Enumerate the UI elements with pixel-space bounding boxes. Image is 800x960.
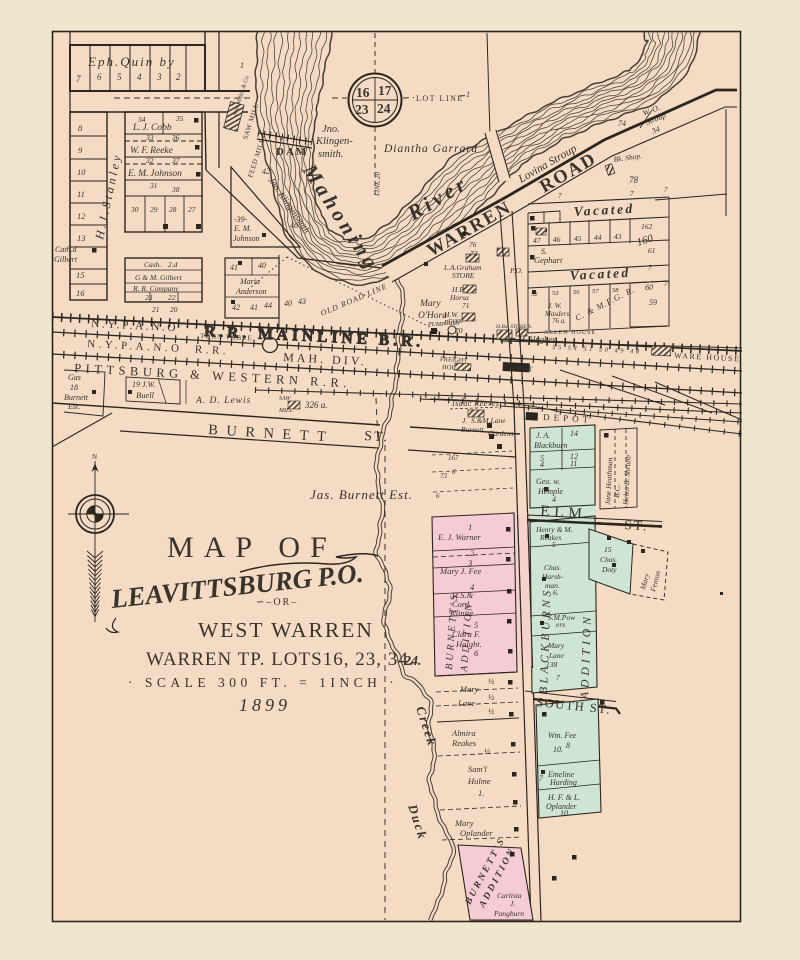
svg-text:22: 22 <box>168 293 176 302</box>
svg-text:76: 76 <box>469 240 477 249</box>
svg-text:42: 42 <box>262 167 270 176</box>
svg-text:Harding: Harding <box>549 778 577 787</box>
svg-text:11: 11 <box>77 189 85 199</box>
svg-text:Oplander: Oplander <box>460 828 493 838</box>
svg-text:30: 30 <box>130 205 139 214</box>
svg-text:29: 29 <box>150 205 158 214</box>
svg-text:Cash.: Cash. <box>144 260 161 269</box>
svg-text:TANK: TANK <box>448 319 464 325</box>
svg-text:13: 13 <box>77 233 86 243</box>
svg-text:24: 24 <box>377 101 391 116</box>
svg-text:Isaac Reeves: Isaac Reeves <box>451 399 500 408</box>
svg-text:H.Ba. STORE S.: H.Ba. STORE S. <box>495 324 532 330</box>
svg-text:∽–OR–: ∽–OR– <box>256 597 298 608</box>
svg-text:6: 6 <box>436 492 440 500</box>
svg-text:DEPOT: DEPOT <box>506 364 534 373</box>
svg-text:10.: 10. <box>553 745 563 754</box>
svg-text:59: 59 <box>649 298 657 307</box>
svg-text:72: 72 <box>470 249 478 258</box>
svg-text:4: 4 <box>137 72 142 82</box>
svg-text:32: 32 <box>145 156 154 165</box>
svg-text:DAM: DAM <box>276 146 308 158</box>
svg-text:½: ½ <box>488 692 495 702</box>
svg-text:326 a.: 326 a. <box>304 400 328 410</box>
svg-text:LOT LINE: LOT LINE <box>416 94 464 103</box>
svg-text:53: 53 <box>552 290 559 297</box>
svg-text:34: 34 <box>137 115 146 124</box>
svg-text:41: 41 <box>250 303 258 312</box>
svg-text:Hulme: Hulme <box>467 776 491 786</box>
svg-text:37: 37 <box>171 156 180 165</box>
svg-text:60: 60 <box>645 283 653 292</box>
svg-text:73: 73 <box>440 472 448 480</box>
svg-text:B.C.: B.C. <box>612 484 622 498</box>
svg-text:36: 36 <box>171 133 180 142</box>
svg-text:J.: J. <box>510 899 515 908</box>
svg-text:5: 5 <box>117 72 122 82</box>
svg-text:Lane: Lane <box>457 698 475 708</box>
svg-text:Chas.: Chas. <box>600 555 617 564</box>
svg-text:Vacated: Vacated <box>573 201 635 219</box>
svg-text:6: 6 <box>97 72 102 82</box>
svg-text:E. J. Warner: E. J. Warner <box>437 532 481 542</box>
svg-text:8: 8 <box>566 741 570 750</box>
svg-text:Vacated: Vacated <box>569 265 631 283</box>
svg-text:38: 38 <box>171 185 180 194</box>
svg-text:40: 40 <box>258 261 266 270</box>
svg-text:46: 46 <box>290 221 298 230</box>
svg-text:W. F. Reeke: W. F. Reeke <box>130 146 173 156</box>
svg-text:1: 1 <box>468 522 472 532</box>
svg-text:MAP OF: MAP OF <box>167 531 337 564</box>
svg-text:Mary: Mary <box>419 299 441 309</box>
svg-text:76 a.: 76 a. <box>552 317 566 325</box>
svg-text:1899: 1899 <box>239 695 291 715</box>
svg-text:1: 1 <box>240 61 244 70</box>
svg-text:7: 7 <box>664 186 668 194</box>
svg-text:35: 35 <box>175 114 184 123</box>
svg-text:4: 4 <box>540 460 544 469</box>
svg-text:162: 162 <box>641 222 653 231</box>
svg-text:PUMP: PUMP <box>427 322 445 328</box>
svg-text:2.d: 2.d <box>168 260 178 269</box>
svg-text:Diantha Garrard: Diantha Garrard <box>383 143 478 155</box>
svg-text:40: 40 <box>284 299 292 308</box>
svg-text:Cath.d: Cath.d <box>55 245 78 254</box>
svg-text:7: 7 <box>76 74 81 84</box>
svg-text:Maria: Maria <box>239 277 260 286</box>
svg-text:21: 21 <box>152 305 160 314</box>
svg-text:H. F. & L.: H. F. & L. <box>547 793 580 802</box>
svg-text:Reakes: Reakes <box>451 738 477 748</box>
svg-text:3: 3 <box>156 72 162 82</box>
svg-text:G & M. Gilbert: G & M. Gilbert <box>135 273 183 282</box>
svg-text:41: 41 <box>230 263 238 272</box>
svg-text:Hemple: Hemple <box>537 487 563 496</box>
svg-text:18: 18 <box>70 383 78 392</box>
svg-text:42: 42 <box>232 303 240 312</box>
svg-text:ST.: ST. <box>364 429 390 445</box>
svg-text:Jas. Burnett Est.: Jas. Burnett Est. <box>310 487 413 502</box>
svg-text:167: 167 <box>448 454 459 462</box>
svg-text:Mary: Mary <box>459 684 479 694</box>
svg-text:23: 23 <box>145 293 153 302</box>
svg-text:27: 27 <box>188 205 196 214</box>
svg-text:17: 17 <box>378 83 392 98</box>
svg-text:Est.: Est. <box>67 402 80 411</box>
svg-text:28: 28 <box>169 205 177 214</box>
svg-text:A. D. Lewis: A. D. Lewis <box>195 396 251 406</box>
svg-text:7: 7 <box>556 673 560 682</box>
svg-text:E. M.: E. M. <box>233 224 252 233</box>
svg-text:R. R. Company: R. R. Company <box>132 284 179 293</box>
svg-text:Gephart: Gephart <box>534 255 563 265</box>
svg-text:12: 12 <box>77 211 86 221</box>
svg-text:J. S.&M.Lane: J. S.&M.Lane <box>462 416 506 425</box>
svg-text:5: 5 <box>552 540 556 549</box>
svg-text:WEST WARREN: WEST WARREN <box>198 618 374 642</box>
svg-text:smith.: smith. <box>318 149 343 160</box>
svg-text:N: N <box>92 453 97 461</box>
svg-text:44: 44 <box>264 301 272 310</box>
svg-text:Pangburn: Pangburn <box>493 909 524 918</box>
svg-text:71: 71 <box>462 301 470 310</box>
svg-text:L. J. Cobb: L. J. Cobb <box>132 123 172 133</box>
svg-text:Geo. w.: Geo. w. <box>536 477 560 486</box>
svg-text:O'Hora: O'Hora <box>418 311 447 321</box>
svg-text:ers: ers <box>556 620 565 629</box>
svg-text:16: 16 <box>76 288 85 298</box>
svg-text:Gas: Gas <box>68 373 81 382</box>
svg-text:43: 43 <box>298 297 306 306</box>
svg-text:10: 10 <box>560 809 568 818</box>
svg-text:19 J.W.: 19 J.W. <box>132 380 156 389</box>
svg-text:33: 33 <box>145 133 154 142</box>
svg-text:43: 43 <box>614 232 622 241</box>
svg-text:Burnett: Burnett <box>461 425 484 434</box>
svg-text:1.: 1. <box>478 788 484 798</box>
svg-text:61: 61 <box>648 246 656 255</box>
svg-text:½: ½ <box>488 676 495 686</box>
svg-text:J. A.: J. A. <box>536 431 550 440</box>
svg-text:1: 1 <box>466 90 470 99</box>
svg-text:Jno.: Jno. <box>322 124 340 135</box>
svg-text:-39-: -39- <box>234 215 248 224</box>
svg-text:· SCALE 300 FT. = 1INCH ·: · SCALE 300 FT. = 1INCH · <box>128 675 398 690</box>
svg-text:56: 56 <box>573 289 580 296</box>
svg-text:Eph.Quin by: Eph.Quin by <box>87 54 176 69</box>
svg-text:16: 16 <box>356 85 370 100</box>
svg-text:78: 78 <box>629 175 639 185</box>
svg-text:57: 57 <box>592 288 599 295</box>
svg-text:STORE: STORE <box>452 271 475 280</box>
svg-text:½: ½ <box>484 746 491 756</box>
svg-text:Mary: Mary <box>454 818 474 828</box>
svg-text:6: 6 <box>452 468 456 476</box>
svg-text:Gilbert: Gilbert <box>54 255 78 264</box>
svg-text:6.: 6. <box>553 588 559 597</box>
svg-text:10: 10 <box>77 167 86 177</box>
svg-text:Mary J. Fee: Mary J. Fee <box>439 566 482 576</box>
svg-text:7: 7 <box>648 264 652 272</box>
svg-text:Johnson: Johnson <box>233 234 260 243</box>
svg-text:20: 20 <box>170 305 178 314</box>
svg-text:Blackburn: Blackburn <box>534 441 567 450</box>
svg-text:Burnett: Burnett <box>64 393 89 402</box>
svg-text:E. M. Johnson: E. M. Johnson <box>127 169 182 179</box>
svg-text:Sam'l: Sam'l <box>468 764 487 774</box>
svg-text:Almira: Almira <box>451 728 476 738</box>
svg-text:Anderson: Anderson <box>235 287 267 296</box>
svg-text:WARREN TP. LOTS16, 23, 34.: WARREN TP. LOTS16, 23, 34. <box>146 649 414 670</box>
svg-text:44: 44 <box>594 233 602 242</box>
svg-text:3: 3 <box>467 558 472 568</box>
svg-text:23: 23 <box>355 102 369 117</box>
svg-text:Klingen-: Klingen- <box>315 136 353 147</box>
svg-text:Buell: Buell <box>136 390 155 400</box>
svg-text:45: 45 <box>574 234 582 243</box>
svg-text:Chas.: Chas. <box>544 563 561 572</box>
svg-text:11: 11 <box>570 459 577 468</box>
svg-text:7: 7 <box>558 192 562 200</box>
svg-text:ELM: ELM <box>540 503 587 523</box>
svg-text:½: ½ <box>488 706 495 716</box>
svg-text:14: 14 <box>570 429 578 438</box>
svg-text:7: 7 <box>630 190 634 198</box>
svg-text:Wm. Fee: Wm. Fee <box>548 731 577 740</box>
svg-text:J. W.: J. W. <box>548 302 562 310</box>
svg-text:47: 47 <box>533 236 541 245</box>
svg-text:2: 2 <box>176 72 181 82</box>
svg-text:46: 46 <box>553 235 561 244</box>
svg-text:Reakes: Reakes <box>539 533 561 542</box>
svg-text:74: 74 <box>618 119 626 128</box>
svg-text:15: 15 <box>604 545 612 554</box>
svg-text:LINE 20: LINE 20 <box>373 171 382 197</box>
svg-text:15: 15 <box>76 270 85 280</box>
svg-text:31: 31 <box>149 181 158 190</box>
